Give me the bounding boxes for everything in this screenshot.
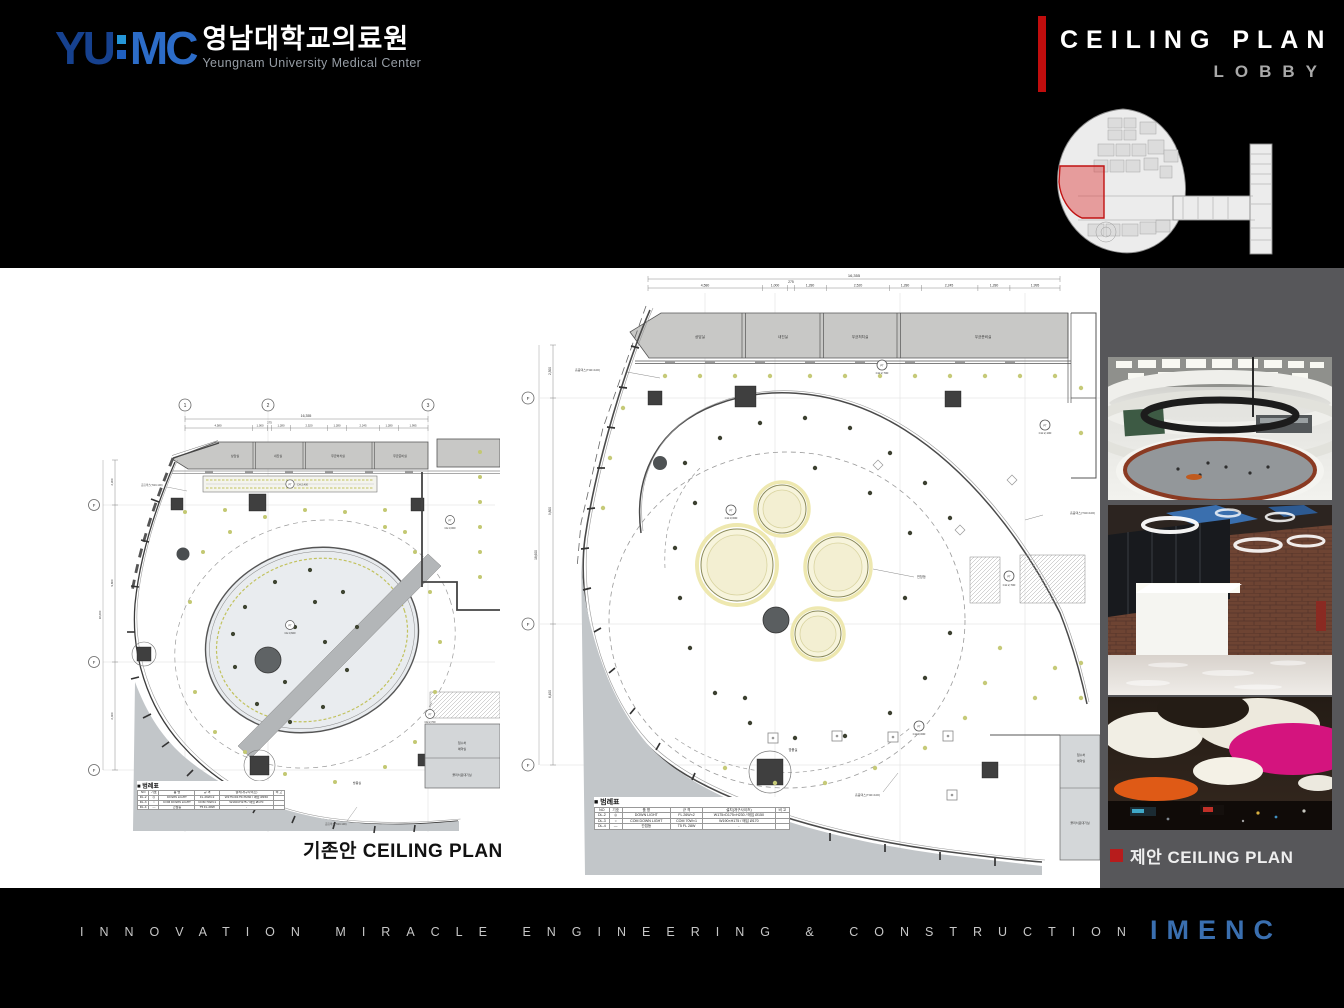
svg-text:1,280: 1,280 bbox=[278, 424, 285, 428]
legend-table-existing: ■ 범례표 NO기호품 명 규 격설치(개구사이즈)비 고 DL-2◎DOWN … bbox=[137, 781, 285, 810]
dim-total: 16,355 bbox=[301, 414, 312, 418]
dim-total: 16,355 bbox=[848, 273, 861, 278]
yumc-logo: YU MC 영남대학교의료원 Yeungnam University Medic… bbox=[55, 22, 421, 74]
svg-text:1,280: 1,280 bbox=[901, 284, 910, 288]
svg-text:PT: PT bbox=[448, 519, 452, 522]
grid-bubble-f: F bbox=[93, 768, 96, 773]
reference-photo-brick-hall bbox=[1108, 505, 1332, 695]
title-accent-bar bbox=[1038, 16, 1046, 92]
svg-text:PT: PT bbox=[1043, 424, 1047, 428]
existing-ceiling-plan: 1 2 3 16,355 4,580 1,000 275 1,280 2,520… bbox=[85, 392, 500, 842]
svg-text:6,400: 6,400 bbox=[110, 712, 114, 719]
grid-bubble-f: F bbox=[527, 396, 530, 401]
logo-acronym-left: YU bbox=[55, 22, 113, 74]
ch-note: CH:2,100 bbox=[1039, 431, 1052, 435]
svg-text:PT: PT bbox=[288, 624, 292, 627]
room-label: 내진실 bbox=[274, 453, 283, 458]
circular-ceiling-lights bbox=[697, 482, 871, 660]
svg-text:PT: PT bbox=[917, 725, 921, 729]
room-label: 물리치료대기실 bbox=[452, 772, 472, 777]
svg-text:275: 275 bbox=[267, 421, 272, 425]
acoustic-note: 흡음텍스(T40×100) bbox=[325, 822, 347, 826]
grid-bubble: 1 bbox=[184, 403, 187, 409]
legend-table-proposed: ■ 범례표 NO기호품 명 규 격설치(개구사이즈)비 고 DL-2◎DOWN … bbox=[594, 797, 790, 830]
room-label: 접수처 bbox=[1077, 752, 1086, 757]
grid-bubble-f: F bbox=[93, 660, 96, 665]
logo-korean-name: 영남대학교의료원 bbox=[202, 24, 421, 54]
svg-text:1,995: 1,995 bbox=[1031, 284, 1040, 288]
ch-note: CH:2,700 bbox=[876, 371, 889, 375]
ch-note: CH:2,700 bbox=[1003, 583, 1016, 587]
svg-text:18,600: 18,600 bbox=[534, 550, 538, 560]
ch-note: CH:3,000 bbox=[913, 732, 926, 736]
room-label: 예약실 bbox=[458, 746, 467, 751]
reference-photo-atrium bbox=[1108, 357, 1332, 500]
svg-text:4,580: 4,580 bbox=[701, 284, 710, 288]
ch-note: CH:2,400 bbox=[297, 482, 309, 486]
acoustic-note: 흡음텍스(T40×100) bbox=[575, 367, 600, 372]
ch-note: CH:3,600 bbox=[285, 631, 297, 635]
slide-root: YU MC 영남대학교의료원 Yeungnam University Medic… bbox=[0, 0, 1344, 1008]
logo-english-name: Yeungnam University Medical Center bbox=[202, 56, 421, 70]
reference-photo-disc-ceiling bbox=[1108, 697, 1332, 830]
grid-bubble: 2 bbox=[267, 403, 270, 409]
svg-text:1,000: 1,000 bbox=[257, 424, 264, 428]
room-label: 상담실 bbox=[231, 453, 240, 458]
proposed-plan-caption: 제안 CEILING PLAN bbox=[1110, 843, 1293, 868]
svg-text:1,280: 1,280 bbox=[806, 284, 815, 288]
svg-text:1,000: 1,000 bbox=[771, 284, 780, 288]
grid-bubble: 3 bbox=[427, 403, 430, 409]
pendant-label: 천창등 bbox=[917, 574, 926, 579]
room-label: 예약실 bbox=[1077, 758, 1086, 763]
oval-ceiling-feature bbox=[181, 520, 443, 760]
svg-text:9,800: 9,800 bbox=[548, 507, 552, 515]
footer-tagline: INNOVATION MIRACLE ENGINEERING & CONSTRU… bbox=[80, 925, 1142, 939]
orange-disc bbox=[1114, 777, 1198, 801]
svg-text:1,280: 1,280 bbox=[990, 284, 999, 288]
proposed-ceiling-plan: 16,355 4,580 1,000 275 1,280 2,520 1,280… bbox=[515, 268, 1100, 878]
reference-sidebar: 제안 CEILING PLAN bbox=[1100, 268, 1344, 888]
svg-text:1,995: 1,995 bbox=[410, 424, 417, 428]
svg-text:PT: PT bbox=[729, 509, 733, 513]
svg-text:1,280: 1,280 bbox=[334, 424, 341, 428]
ch-note: CH:3,000 bbox=[445, 526, 457, 530]
svg-text:275: 275 bbox=[788, 280, 794, 284]
room-label: 무균처치실 bbox=[331, 453, 345, 458]
page-title: CEILING PLAN bbox=[1060, 26, 1336, 55]
logo-acronym-right: MC bbox=[130, 22, 196, 74]
grid-bubble-f: F bbox=[93, 503, 96, 508]
svg-text:2,245: 2,245 bbox=[945, 284, 954, 288]
svg-text:2,520: 2,520 bbox=[306, 424, 313, 428]
fixture-symbol: PT bbox=[288, 483, 292, 486]
key-plan-map bbox=[1048, 100, 1278, 262]
ch-note: CH:3,600 bbox=[725, 516, 738, 520]
red-square-bullet-icon bbox=[1110, 849, 1123, 862]
ch-note: CH:2,700 bbox=[425, 720, 437, 724]
svg-text:9,800: 9,800 bbox=[110, 579, 114, 586]
svg-text:18,600: 18,600 bbox=[98, 610, 102, 619]
acoustic-note: 흡음텍스(T40×100) bbox=[141, 483, 163, 487]
imenc-brand-logo: IMENC bbox=[1150, 915, 1282, 946]
vestibule-label: 방풍실 bbox=[353, 780, 362, 785]
logo-colon-icon bbox=[117, 22, 126, 72]
page-subtitle: LOBBY bbox=[1060, 62, 1328, 82]
svg-text:PT: PT bbox=[1007, 575, 1011, 579]
svg-text:PT: PT bbox=[880, 364, 884, 368]
grid-bubble-f: F bbox=[527, 622, 530, 627]
room-label: 무균처치실 bbox=[852, 334, 869, 339]
acoustic-note: 흡음텍스(T40×100) bbox=[855, 792, 880, 797]
svg-text:6,400: 6,400 bbox=[548, 690, 552, 698]
grid-bubble-f: F bbox=[527, 763, 530, 768]
room-label: 무균준비실 bbox=[393, 453, 407, 458]
svg-text:1,280: 1,280 bbox=[386, 424, 393, 428]
room-label: 상담실 bbox=[695, 334, 705, 339]
svg-text:2,520: 2,520 bbox=[854, 284, 863, 288]
svg-text:PT: PT bbox=[428, 713, 432, 716]
svg-text:4,580: 4,580 bbox=[215, 424, 222, 428]
acoustic-note: 흡음텍스(T40×100) bbox=[1070, 510, 1095, 515]
room-label: 물리치료대기실 bbox=[1070, 820, 1090, 825]
svg-text:2,300: 2,300 bbox=[548, 367, 552, 375]
room-label: 내진실 bbox=[778, 334, 788, 339]
room-label: 무균준비실 bbox=[975, 334, 992, 339]
existing-plan-caption: 기존안 CEILING PLAN bbox=[303, 836, 503, 863]
svg-text:2,245: 2,245 bbox=[360, 424, 367, 428]
vestibule-label: 방풍실 bbox=[789, 747, 798, 752]
room-label: 접수처 bbox=[458, 740, 467, 745]
svg-text:2,300: 2,300 bbox=[110, 478, 114, 485]
